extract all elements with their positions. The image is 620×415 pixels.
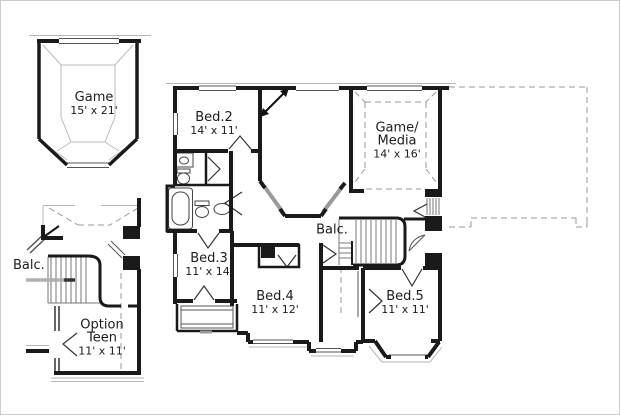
room-dims: 11' x 11' <box>78 345 126 358</box>
room-name: Balc. <box>13 258 45 273</box>
room-dims: 11' x 12' <box>251 303 299 316</box>
room-label-bed3: Bed.3 11' x 14' <box>185 252 233 278</box>
room-name: Bed.3 <box>185 252 233 265</box>
room-dims: 14' x 11' <box>190 124 238 137</box>
open-to-below-gray-walls <box>264 186 342 212</box>
room-name: Bed.5 <box>381 290 429 303</box>
room-label-bed2: Bed.2 14' x 11' <box>190 111 238 137</box>
bathroom-fixtures <box>169 153 231 229</box>
ceiling-slope-arrow <box>260 88 289 117</box>
room-label-bed4: Bed.4 11' x 12' <box>251 290 299 316</box>
room-name: Bed.4 <box>251 290 299 303</box>
room-dims: 14' x 16' <box>373 148 421 161</box>
stair-walls <box>48 218 425 306</box>
room-name: Game/ Media <box>373 122 421 148</box>
room-name: Game <box>70 91 118 104</box>
room-label-balcony-left: Balc. <box>13 259 45 272</box>
room-dims: 15' x 21' <box>70 104 118 117</box>
windows-and-door-leaves <box>59 39 427 356</box>
stair-treads <box>48 198 439 303</box>
room-name: Balc. <box>316 224 348 237</box>
room-label-game-media: Game/ Media 14' x 16' <box>373 122 421 161</box>
room-label-game: Game 15' x 21' <box>70 91 118 117</box>
room-dims: 11' x 11' <box>381 303 429 316</box>
room-name: Option Teen <box>78 319 126 345</box>
room-name: Bed.2 <box>190 111 238 124</box>
room-label-option-teen: Option Teen 11' x 11' <box>78 319 126 358</box>
room-dims: 11' x 14' <box>185 265 233 278</box>
room-label-balcony-center: Balc. <box>316 224 348 237</box>
floor-plan-canvas: Game 15' x 21' Bed.2 14' x 11' Game/ Med… <box>0 0 620 415</box>
room-label-bed5: Bed.5 11' x 11' <box>381 290 429 316</box>
